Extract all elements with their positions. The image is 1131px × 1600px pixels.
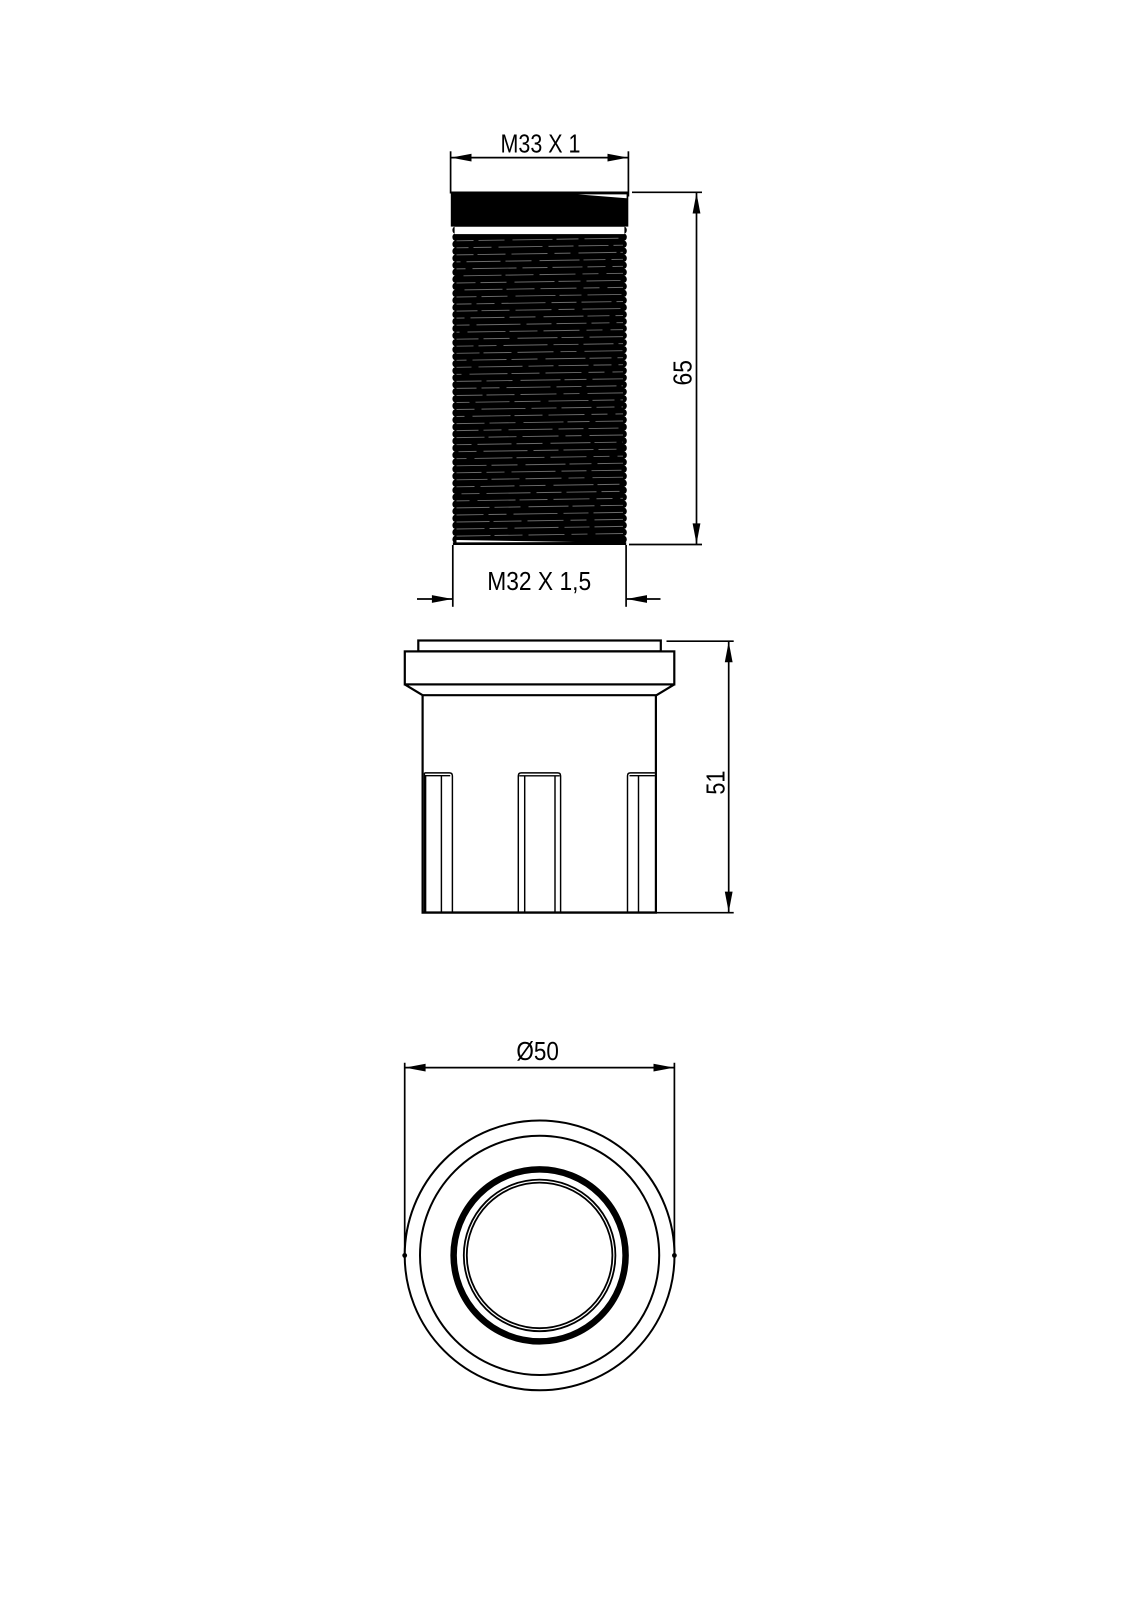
svg-text:Ø50: Ø50 xyxy=(516,1038,559,1066)
svg-text:M32 X 1,5: M32 X 1,5 xyxy=(487,568,591,596)
svg-text:51: 51 xyxy=(702,771,730,795)
svg-text:65: 65 xyxy=(669,360,697,386)
svg-text:M33 X 1: M33 X 1 xyxy=(501,131,581,159)
